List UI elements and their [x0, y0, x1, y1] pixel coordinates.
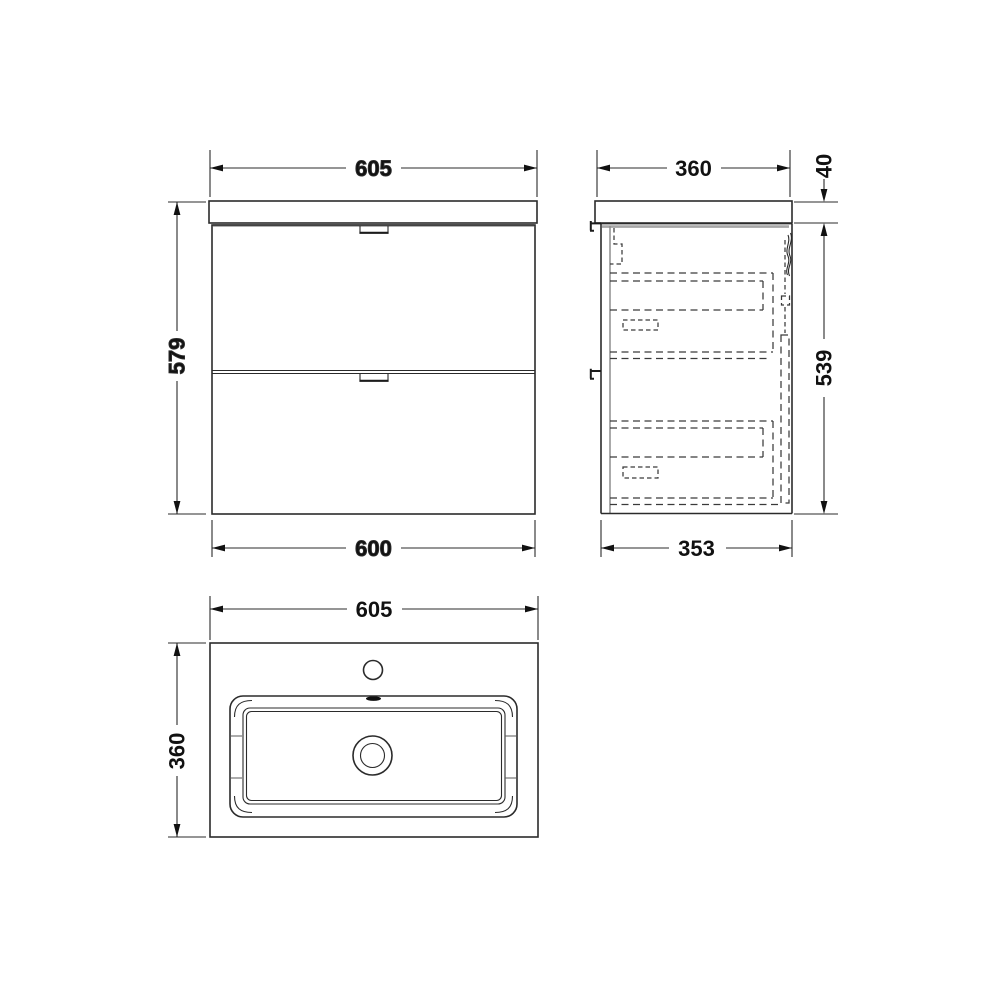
dim-front-width-top: 605 [210, 150, 537, 197]
arrowhead-down-icon [821, 501, 828, 514]
arrowhead-up-icon [174, 202, 181, 215]
arrowhead-down-icon [174, 501, 181, 514]
dim-value-side-basin-thickness: 40 [812, 154, 837, 178]
side-upper-drawer-hidden [610, 273, 773, 359]
arrowhead-left-icon [210, 165, 223, 172]
dim-side-depth-top: 360 [597, 150, 790, 197]
dim-value-front-width-bottom: 600 [355, 536, 392, 561]
arrowhead-down-icon [174, 824, 181, 837]
dim-value-front-height: 579 [165, 338, 190, 375]
dim-value-plan-width-top: 605 [356, 597, 393, 622]
side-lower-drawer-hidden [610, 421, 781, 505]
side-wall-rail-hidden [781, 335, 789, 503]
dim-value-side-depth-top: 360 [675, 156, 712, 181]
dim-value-side-cabinet-height: 539 [812, 350, 837, 387]
arrowhead-left-icon [601, 545, 614, 552]
arrowhead-up-icon [821, 223, 828, 236]
bowl-rim-joint-ticks [231, 736, 516, 778]
drawer-runner-clip [623, 467, 658, 478]
arrowhead-right-icon [777, 165, 790, 172]
dim-plan-depth-left: 360 [165, 643, 207, 837]
arrowhead-right-icon [525, 606, 538, 613]
arrowhead-up-icon [174, 643, 181, 656]
arrowhead-right-icon [522, 545, 535, 552]
bracket-adjuster-block [782, 296, 790, 305]
handle-sides [360, 374, 388, 380]
drawer-runner-clip [623, 320, 658, 330]
dim-side-depth-bottom: 353 [601, 520, 792, 561]
dim-value-front-width-top: 605 [355, 156, 392, 181]
front-cabinet-body [212, 225, 535, 514]
front-basin-top [209, 201, 537, 223]
front-drawer-handle-upper [359, 226, 388, 233]
dim-side-cabinet-height: 539 [794, 236, 838, 514]
side-hanging-bracket [782, 233, 792, 333]
arrowhead-right-icon [779, 545, 792, 552]
drawer-runner-lines [610, 352, 773, 359]
dim-side-basin-thickness: 40 [794, 154, 838, 236]
arrowhead-left-icon [212, 545, 225, 552]
arrowhead-left-icon [597, 165, 610, 172]
technical-drawing-page: 605 579 600 [0, 0, 1000, 1000]
side-handle-profile-lower [590, 369, 601, 379]
dim-plan-width-top: 605 [210, 596, 538, 640]
bowl-rim-inner-2 [247, 712, 502, 801]
bowl-outer-edge [230, 696, 517, 817]
plan-bowl [230, 696, 517, 817]
arrowhead-left-icon [210, 606, 223, 613]
plan-overflow-slot [366, 696, 381, 701]
drawer-runner-lines [610, 498, 781, 505]
bowl-corner-arc-tr [495, 701, 513, 718]
bowl-rim-inner-1 [243, 708, 505, 804]
plan-waste-inner [361, 744, 385, 768]
dim-value-side-depth-bottom: 353 [678, 536, 715, 561]
dim-value-plan-depth-left: 360 [165, 733, 190, 770]
side-hidden-step-detail [610, 228, 622, 264]
plan-basin-outline [210, 643, 538, 837]
front-drawer-handle-lower [359, 374, 388, 381]
arrowhead-right-icon [524, 165, 537, 172]
side-handle-profile-upper [590, 221, 601, 231]
plan-waste-outer [353, 736, 392, 775]
plan-view: 605 360 [165, 596, 539, 837]
side-basin-top [595, 201, 792, 223]
dim-extension-lines [794, 202, 838, 223]
front-view: 605 579 600 [165, 150, 538, 561]
side-cabinet-body [601, 224, 792, 514]
arrowhead-down-icon [821, 189, 828, 202]
vanity-unit-technical-drawing: 605 579 600 [0, 0, 1000, 1000]
side-view: 360 40 539 353 [590, 150, 838, 561]
plan-tap-hole [364, 661, 383, 680]
dim-front-height: 579 [165, 202, 207, 514]
dim-front-width-bottom: 600 [212, 520, 535, 561]
front-drawer-divider [212, 371, 535, 374]
